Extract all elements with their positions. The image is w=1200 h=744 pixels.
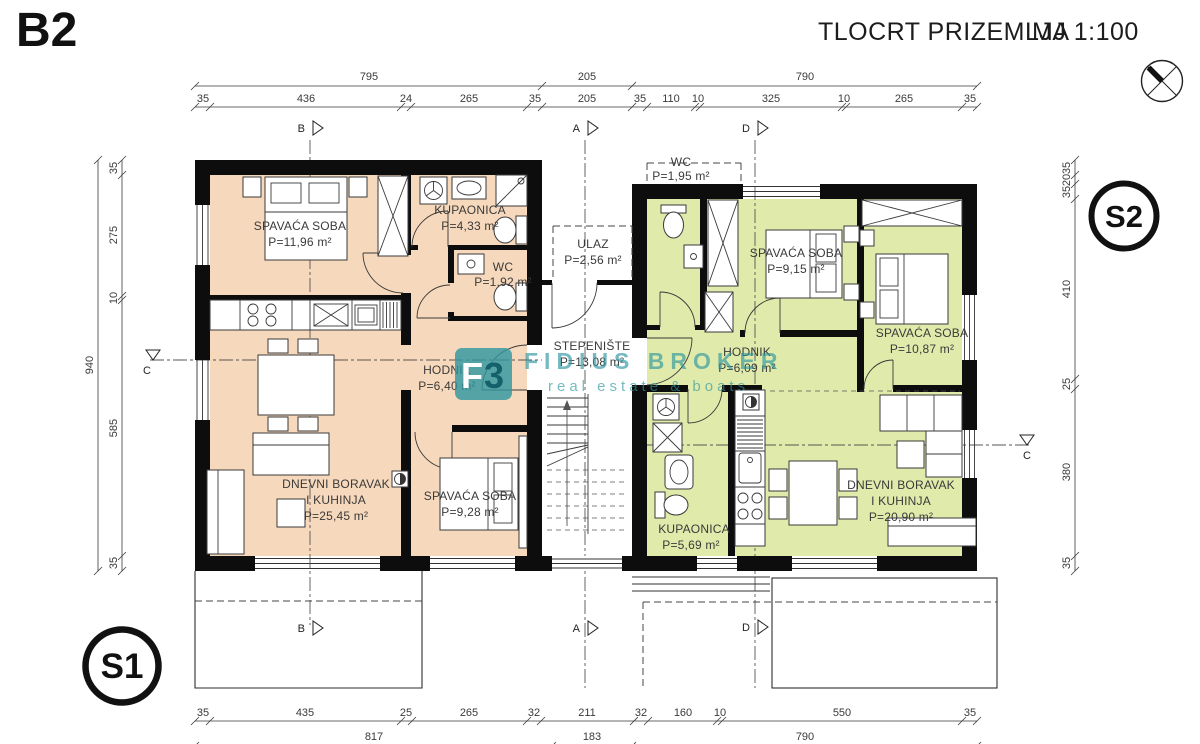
svg-text:P=9,28 m²: P=9,28 m² (441, 505, 499, 519)
svg-text:325: 325 (762, 93, 780, 105)
svg-text:35: 35 (108, 557, 120, 569)
svg-text:25: 25 (400, 707, 412, 719)
svg-text:C: C (143, 365, 151, 377)
badge-s1: S1 (86, 630, 159, 703)
svg-text:P=2,56 m²: P=2,56 m² (564, 253, 622, 267)
svg-text:817: 817 (365, 731, 383, 743)
svg-text:WC: WC (671, 155, 692, 169)
svg-text:265: 265 (460, 93, 478, 105)
svg-text:10: 10 (692, 93, 704, 105)
svg-text:795: 795 (360, 71, 378, 83)
svg-text:KUPAONICA: KUPAONICA (434, 203, 506, 217)
kitchen-counter-icon (735, 390, 765, 546)
svg-text:205: 205 (578, 93, 596, 105)
svg-text:35: 35 (197, 93, 209, 105)
washing-machine-icon (653, 394, 679, 420)
svg-text:32: 32 (635, 707, 647, 719)
svg-text:35: 35 (529, 93, 541, 105)
washing-machine-icon (420, 177, 447, 204)
watermark-logo-3: 3 (484, 355, 504, 396)
svg-text:10: 10 (838, 93, 850, 105)
svg-text:SPAVAĆA SOBA: SPAVAĆA SOBA (424, 488, 516, 503)
svg-text:410: 410 (1061, 280, 1073, 298)
svg-text:183: 183 (583, 731, 601, 743)
svg-text:A: A (573, 123, 581, 135)
sheet-label: B2 (16, 4, 77, 57)
toilet-icon (494, 216, 527, 244)
svg-text:110: 110 (662, 93, 680, 105)
svg-text:SPAVAĆA SOBA: SPAVAĆA SOBA (750, 245, 842, 260)
wardrobe-icon (705, 200, 738, 332)
svg-text:D: D (742, 123, 750, 135)
dim-labels-right: 35 20 35 410 25 380 35 (1061, 162, 1073, 569)
svg-text:S2: S2 (1105, 199, 1143, 234)
svg-text:I KUHINJA: I KUHINJA (306, 493, 366, 507)
svg-text:550: 550 (833, 707, 851, 719)
svg-text:35: 35 (1061, 186, 1073, 198)
sink-icon (684, 245, 703, 268)
floor-plan-drawing: B2 TLOCRT PRIZEMLJA MJ 1:100 B A D B (0, 0, 1200, 744)
core-stairwell (542, 226, 632, 571)
svg-text:SPAVAĆA SOBA: SPAVAĆA SOBA (876, 325, 968, 340)
svg-text:10: 10 (714, 707, 726, 719)
sink-icon (665, 455, 693, 489)
svg-text:275: 275 (108, 226, 120, 244)
section-marker-d-top: D (742, 121, 768, 135)
svg-text:20: 20 (1061, 174, 1073, 186)
svg-text:ULAZ: ULAZ (577, 237, 608, 251)
badge-s2: S2 (1092, 184, 1157, 249)
kitchen-counter-icon (210, 300, 401, 330)
svg-text:205: 205 (578, 71, 596, 83)
watermark-tagline: real estate & boats (548, 378, 749, 395)
svg-text:SPAVAĆA SOBA: SPAVAĆA SOBA (254, 218, 346, 233)
svg-text:P=4,33 m²: P=4,33 m² (441, 219, 499, 233)
svg-text:B: B (298, 123, 305, 135)
svg-text:P=1,92 m²: P=1,92 m² (474, 275, 532, 289)
section-marker-c-left: C (143, 350, 160, 377)
svg-text:C: C (1023, 450, 1031, 462)
svg-text:211: 211 (578, 707, 596, 719)
svg-text:P=20,90 m²: P=20,90 m² (869, 510, 933, 524)
svg-text:435: 435 (296, 707, 314, 719)
svg-text:P=10,87 m²: P=10,87 m² (890, 342, 954, 356)
svg-text:WC: WC (493, 260, 514, 274)
watermark-brand: FIDIUS BROKER (524, 348, 783, 374)
stairs-icon (547, 394, 628, 534)
svg-text:35: 35 (1061, 557, 1073, 569)
svg-text:35: 35 (964, 93, 976, 105)
svg-text:35: 35 (197, 707, 209, 719)
wardrobe-icon (862, 200, 962, 226)
svg-text:32: 32 (528, 707, 540, 719)
svg-text:436: 436 (297, 93, 315, 105)
watermark-logo-f: F (461, 355, 483, 396)
svg-text:I KUHINJA: I KUHINJA (871, 494, 931, 508)
shower-icon (653, 423, 682, 452)
svg-text:160: 160 (674, 707, 692, 719)
svg-text:35: 35 (1061, 162, 1073, 174)
sink-icon (452, 177, 486, 199)
svg-text:25: 25 (1061, 378, 1073, 390)
svg-text:P=11,96 m²: P=11,96 m² (268, 235, 331, 249)
floor-plan-page: B2 TLOCRT PRIZEMLJA MJ 1:100 B A D B (0, 0, 1200, 744)
dim-labels-left: 35 275 10 585 35 940 (84, 162, 120, 569)
svg-text:35: 35 (634, 93, 646, 105)
north-compass-icon (1142, 61, 1183, 102)
svg-text:D: D (742, 622, 750, 634)
svg-text:P=5,69 m²: P=5,69 m² (662, 538, 720, 552)
dim-labels-top: 795 205 790 35 436 24 265 35 205 35 110 … (197, 71, 976, 105)
header: B2 TLOCRT PRIZEMLJA MJ 1:100 (16, 4, 1183, 102)
svg-text:KUPAONICA: KUPAONICA (658, 522, 730, 536)
boiler-icon (392, 471, 408, 487)
svg-text:P=1,95 m²: P=1,95 m² (652, 169, 710, 183)
sink-icon (458, 254, 484, 274)
svg-text:790: 790 (796, 731, 814, 743)
section-marker-c-right: C (1020, 435, 1034, 462)
shower-icon (496, 175, 527, 206)
room-label-right-wc: WC P=1,95 m² (652, 155, 710, 183)
svg-text:265: 265 (895, 93, 913, 105)
section-marker-a-top: A (573, 121, 598, 135)
svg-text:10: 10 (108, 292, 120, 304)
svg-text:S1: S1 (101, 647, 144, 686)
svg-text:P=9,15 m²: P=9,15 m² (767, 262, 825, 276)
section-marker-b-top: B (298, 121, 323, 135)
svg-text:DNEVNI BORAVAK: DNEVNI BORAVAK (847, 478, 955, 492)
svg-text:DNEVNI BORAVAK: DNEVNI BORAVAK (282, 477, 390, 491)
svg-text:P=25,45 m²: P=25,45 m² (304, 509, 368, 523)
dim-labels-bottom: 35 435 25 265 32 211 32 160 10 550 35 81… (197, 707, 976, 743)
svg-text:35: 35 (964, 707, 976, 719)
room-label-entrance: ULAZ P=2,56 m² (564, 237, 622, 267)
svg-text:940: 940 (84, 356, 96, 374)
boiler-icon (743, 394, 759, 410)
svg-text:35: 35 (108, 162, 120, 174)
svg-text:790: 790 (796, 71, 814, 83)
svg-text:B: B (298, 623, 305, 635)
svg-text:380: 380 (1061, 463, 1073, 481)
scale-label: MJ 1:100 (1032, 18, 1139, 46)
svg-text:585: 585 (108, 419, 120, 437)
svg-text:24: 24 (400, 93, 412, 105)
wardrobe-icon (378, 176, 408, 256)
svg-text:A: A (573, 623, 581, 635)
svg-text:265: 265 (460, 707, 478, 719)
